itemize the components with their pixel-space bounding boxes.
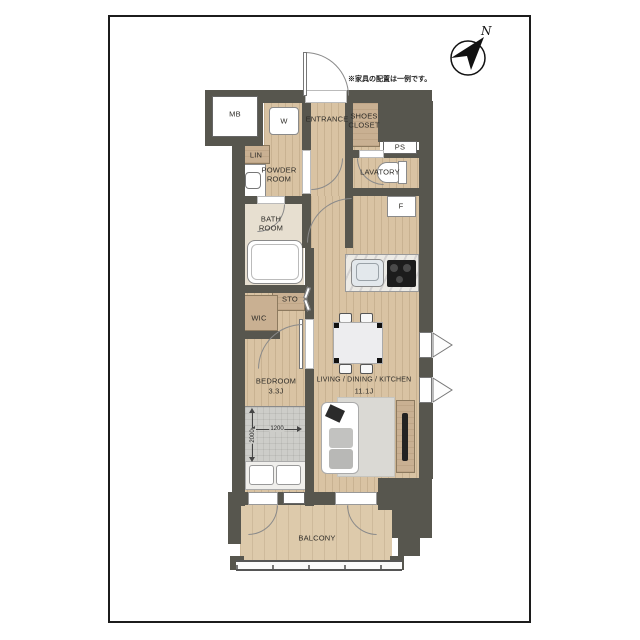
room-label-shoes-closet: SHOES CLOSET [348,112,379,131]
wall [345,150,359,158]
bathtub-inner [251,244,299,280]
room-label-lin: LIN [250,150,262,159]
vanity-basin [245,172,261,189]
entrance-door-leaf [303,52,307,96]
bedroom-balcony-door [248,492,278,505]
window-swing-icon [432,331,454,359]
stove-burner [403,264,411,272]
wall [285,196,304,204]
bed-depth-label: 2000 [250,428,256,443]
bath-door-gap [257,196,285,204]
balcony-railing [236,560,402,571]
dim-arrow [249,408,255,413]
wall [398,538,420,556]
room-label-sto: STO [282,294,298,303]
room-label-mb: MB [229,109,241,118]
tv [402,413,408,461]
dim-arrow [249,457,255,462]
kitchen-sink-basin [356,263,379,281]
room-label-bath-room: BATH ROOM [259,215,283,234]
wall [392,510,432,538]
wall [378,478,432,510]
dining-chair [360,364,373,374]
wall [314,492,335,505]
floorplan-page: 1200 2000 [0,0,640,640]
stove-burner [390,264,398,272]
bed-width-label: 1200 [269,426,284,432]
stove-burner [396,276,403,283]
dining-table [333,322,383,364]
room-label-powder-room: POWDER ROOM [262,166,297,185]
wall [302,101,311,150]
ldk-window [419,332,432,358]
lavatory-door-gap [359,150,384,158]
dim-arrow [297,426,302,432]
wall [240,285,307,293]
table-leg [377,323,382,328]
dining-chair [339,364,352,374]
wall [240,196,257,204]
wall [305,369,314,506]
wall [378,101,419,142]
room-label-f: F [399,201,404,210]
room-label-bedroom: BEDROOM [256,376,296,385]
sofa-cushion [329,449,353,469]
room-label-wic: WIC [251,313,266,322]
room-label-balcony: BALCONY [298,533,335,542]
compass-north-label: N [481,24,492,38]
wall [419,358,433,377]
sofa-cushion [329,428,353,448]
bedroom-small-window [283,492,305,504]
table-leg [377,358,382,363]
wall [347,188,419,196]
room-label-lavatory: LAVATORY [360,167,400,176]
table-leg [334,323,339,328]
powder-door-gap [302,150,311,194]
pillow [276,465,301,485]
room-label-ldk: LIVING / DINING / KITCHEN [317,377,412,386]
room-label-ps: PS [395,142,405,151]
wall [419,403,433,479]
pillow [249,465,274,485]
furniture-note-text: ※家具の配置は一例です。 [348,74,431,84]
room-label-entrance: ENTRANCE [306,114,349,123]
room-label-w: W [280,116,287,125]
ldk-window [419,377,432,403]
wall [228,492,241,544]
bedroom-door-gap [305,319,314,369]
table-leg [334,358,339,363]
wall [263,90,307,103]
room-size-ldk: 11.1J [355,386,374,395]
wall [419,101,433,332]
room-size-bedroom: 3.3J [269,386,284,395]
window-swing-icon [432,376,454,404]
ldk-balcony-door [335,492,377,505]
